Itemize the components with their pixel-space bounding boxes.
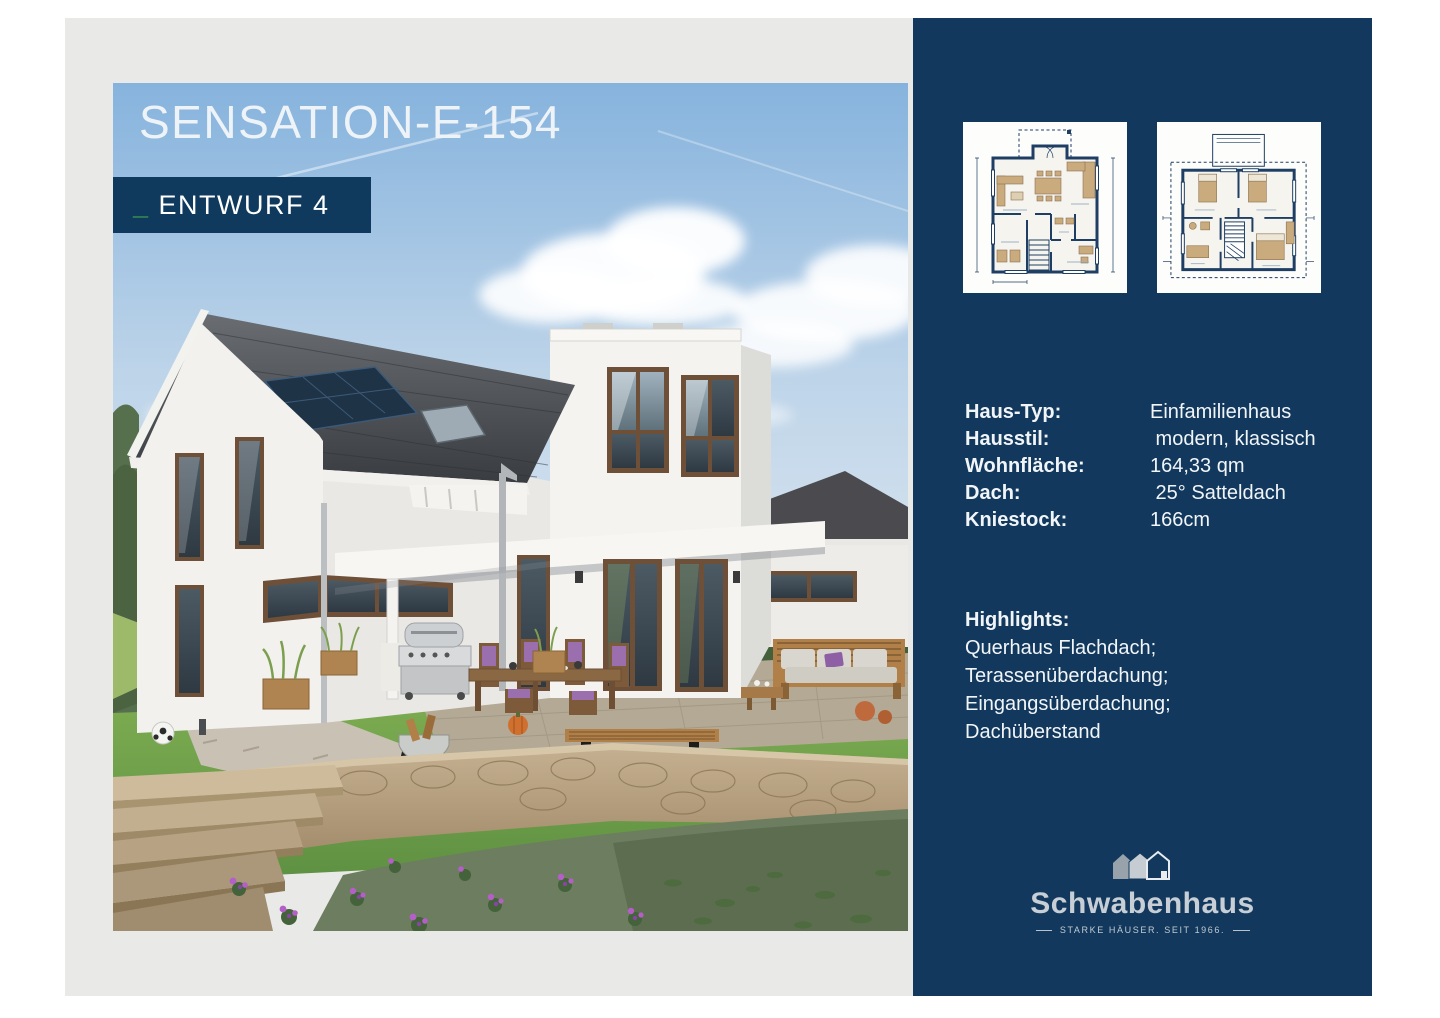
spec-value: Einfamilienhaus (1150, 399, 1291, 426)
floorplan-ground-icon (963, 122, 1127, 293)
spec-table: Haus-Typ: Einfamilienhaus Hausstil: mode… (965, 399, 1335, 534)
info-sidebar: Haus-Typ: Einfamilienhaus Hausstil: mode… (913, 18, 1372, 996)
floorplan-ground-thumbnail (963, 122, 1127, 293)
house-photo: SENSATION-E-154 _ENTWURF 4 (113, 83, 908, 931)
floorplan-upper-icon (1157, 122, 1321, 293)
gable-ground-window (175, 585, 204, 697)
spec-row: Dach: 25° Satteldach (965, 480, 1335, 507)
brochure-page: SENSATION-E-154 _ENTWURF 4 (65, 18, 1372, 996)
spec-row: Haus-Typ: Einfamilienhaus (965, 399, 1335, 426)
tagline-rule-left (1036, 930, 1052, 931)
spec-label: Kniestock: (965, 507, 1150, 534)
highlight-item: Eingangsüberdachung; (965, 690, 1335, 718)
entwurf-badge: _ENTWURF 4 (113, 177, 371, 233)
spec-row: Wohnfläche: 164,33 qm (965, 453, 1335, 480)
highlight-item: Querhaus Flachdach; (965, 634, 1335, 662)
highlight-item: Terassenüberdachung; (965, 662, 1335, 690)
soccer-ball (152, 722, 174, 744)
wall-sconce-right (733, 571, 740, 583)
spec-label: Wohnfläche: (965, 453, 1150, 480)
photo-panel: SENSATION-E-154 _ENTWURF 4 (65, 18, 913, 996)
page-title: SENSATION-E-154 (139, 95, 562, 149)
cube-upper-window-left (607, 367, 669, 473)
rear-ribbon-window (765, 571, 857, 602)
downpipe-left (321, 503, 327, 723)
spec-label: Dach: (965, 480, 1150, 507)
spec-label: Hausstil: (965, 426, 1150, 453)
spec-value: 25° Satteldach (1150, 480, 1286, 507)
badge-label: ENTWURF 4 (159, 190, 330, 221)
spec-label: Haus-Typ: (965, 399, 1150, 426)
cube-parapet (550, 329, 741, 341)
logo-wordmark: Schwabenhaus (913, 887, 1372, 921)
wall-sconce (575, 571, 583, 583)
highlights-title: Highlights: (965, 606, 1335, 634)
tagline-text: STARKE HÄUSER. SEIT 1966. (1060, 925, 1225, 935)
highlight-item: Dachüberstand (965, 718, 1335, 746)
floorplan-upper-thumbnail (1157, 122, 1321, 293)
schwabenhaus-logo: Schwabenhaus STARKE HÄUSER. SEIT 1966. (913, 850, 1372, 935)
tagline-rule-right (1233, 930, 1249, 931)
logo-tagline: STARKE HÄUSER. SEIT 1966. (1036, 925, 1250, 935)
spec-row: Hausstil: modern, klassisch (965, 426, 1335, 453)
spec-value: modern, klassisch (1150, 426, 1316, 453)
bollard-light (199, 719, 206, 735)
cube-side-wall (741, 345, 771, 698)
spec-row: Kniestock: 166cm (965, 507, 1335, 534)
highlights-section: Highlights: Querhaus Flachdach; Terassen… (965, 606, 1335, 746)
badge-underscore-accent: _ (133, 190, 150, 221)
floorplan-thumbnails (963, 122, 1321, 293)
spec-value: 166cm (1150, 507, 1210, 534)
downpipe (499, 473, 506, 691)
spec-value: 164,33 qm (1150, 453, 1245, 480)
logo-houses-icon (1110, 850, 1176, 880)
cube-upper-window-right (681, 375, 739, 477)
